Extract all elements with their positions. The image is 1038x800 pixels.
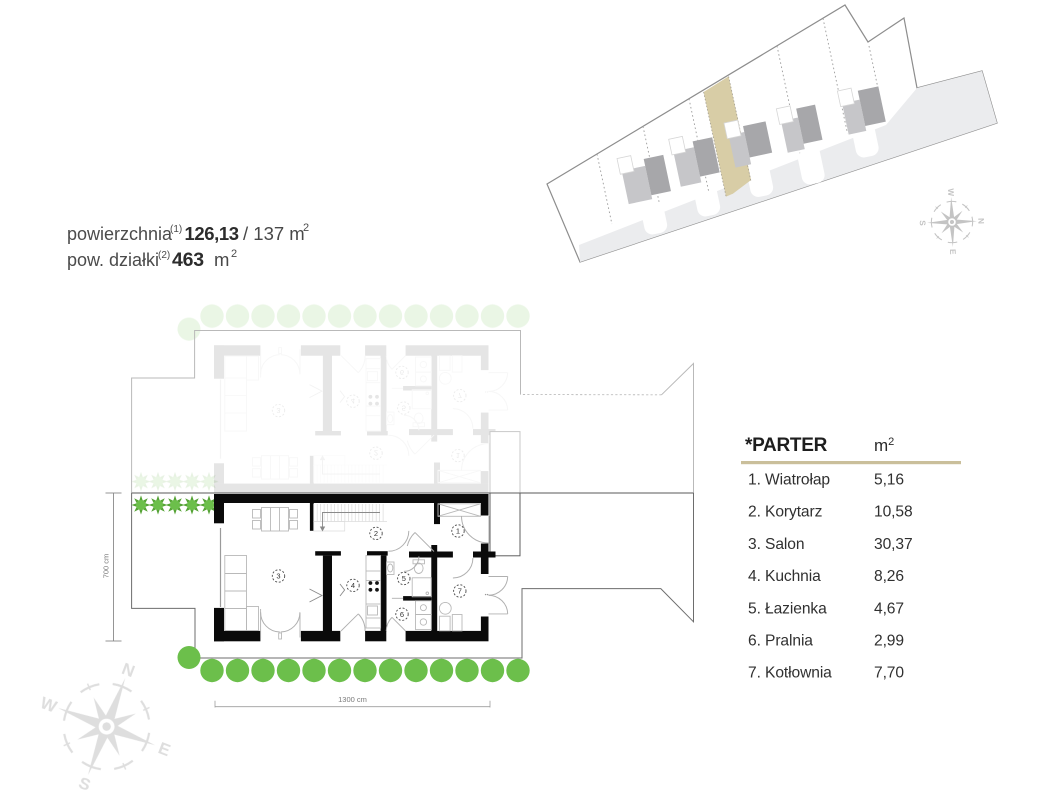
svg-text:6: 6: [400, 610, 404, 619]
svg-text:4: 4: [351, 581, 355, 590]
svg-text:1. Wiatrołap: 1. Wiatrołap: [748, 472, 830, 489]
svg-text:700 cm: 700 cm: [102, 554, 111, 579]
svg-text:5. Łazienka: 5. Łazienka: [748, 600, 827, 617]
svg-text:6. Pralnia: 6. Pralnia: [748, 633, 813, 650]
svg-text:10,58: 10,58: [874, 504, 913, 521]
svg-text:3: 3: [276, 572, 280, 581]
svg-text:2. Korytarz: 2. Korytarz: [748, 504, 823, 521]
svg-text:*PARTER: *PARTER: [745, 435, 828, 456]
svg-text:8,26: 8,26: [874, 568, 904, 585]
svg-text:3. Salon: 3. Salon: [748, 536, 804, 553]
svg-text:1300 cm: 1300 cm: [338, 695, 367, 704]
svg-text:powierzchnia(1)126,13/ 137 m2: powierzchnia(1)126,13/ 137 m2: [67, 222, 309, 244]
svg-text:7: 7: [458, 587, 462, 596]
svg-text:7,70: 7,70: [874, 665, 904, 682]
svg-text:5,16: 5,16: [874, 472, 904, 489]
svg-text:1: 1: [456, 527, 460, 536]
svg-text:5: 5: [402, 574, 406, 583]
svg-text:4. Kuchnia: 4. Kuchnia: [748, 568, 821, 585]
svg-text:2,99: 2,99: [874, 633, 904, 650]
svg-text:4,67: 4,67: [874, 600, 904, 617]
svg-text:30,37: 30,37: [874, 536, 913, 553]
svg-text:7. Kotłownia: 7. Kotłownia: [748, 665, 832, 682]
svg-text:2: 2: [374, 529, 378, 538]
